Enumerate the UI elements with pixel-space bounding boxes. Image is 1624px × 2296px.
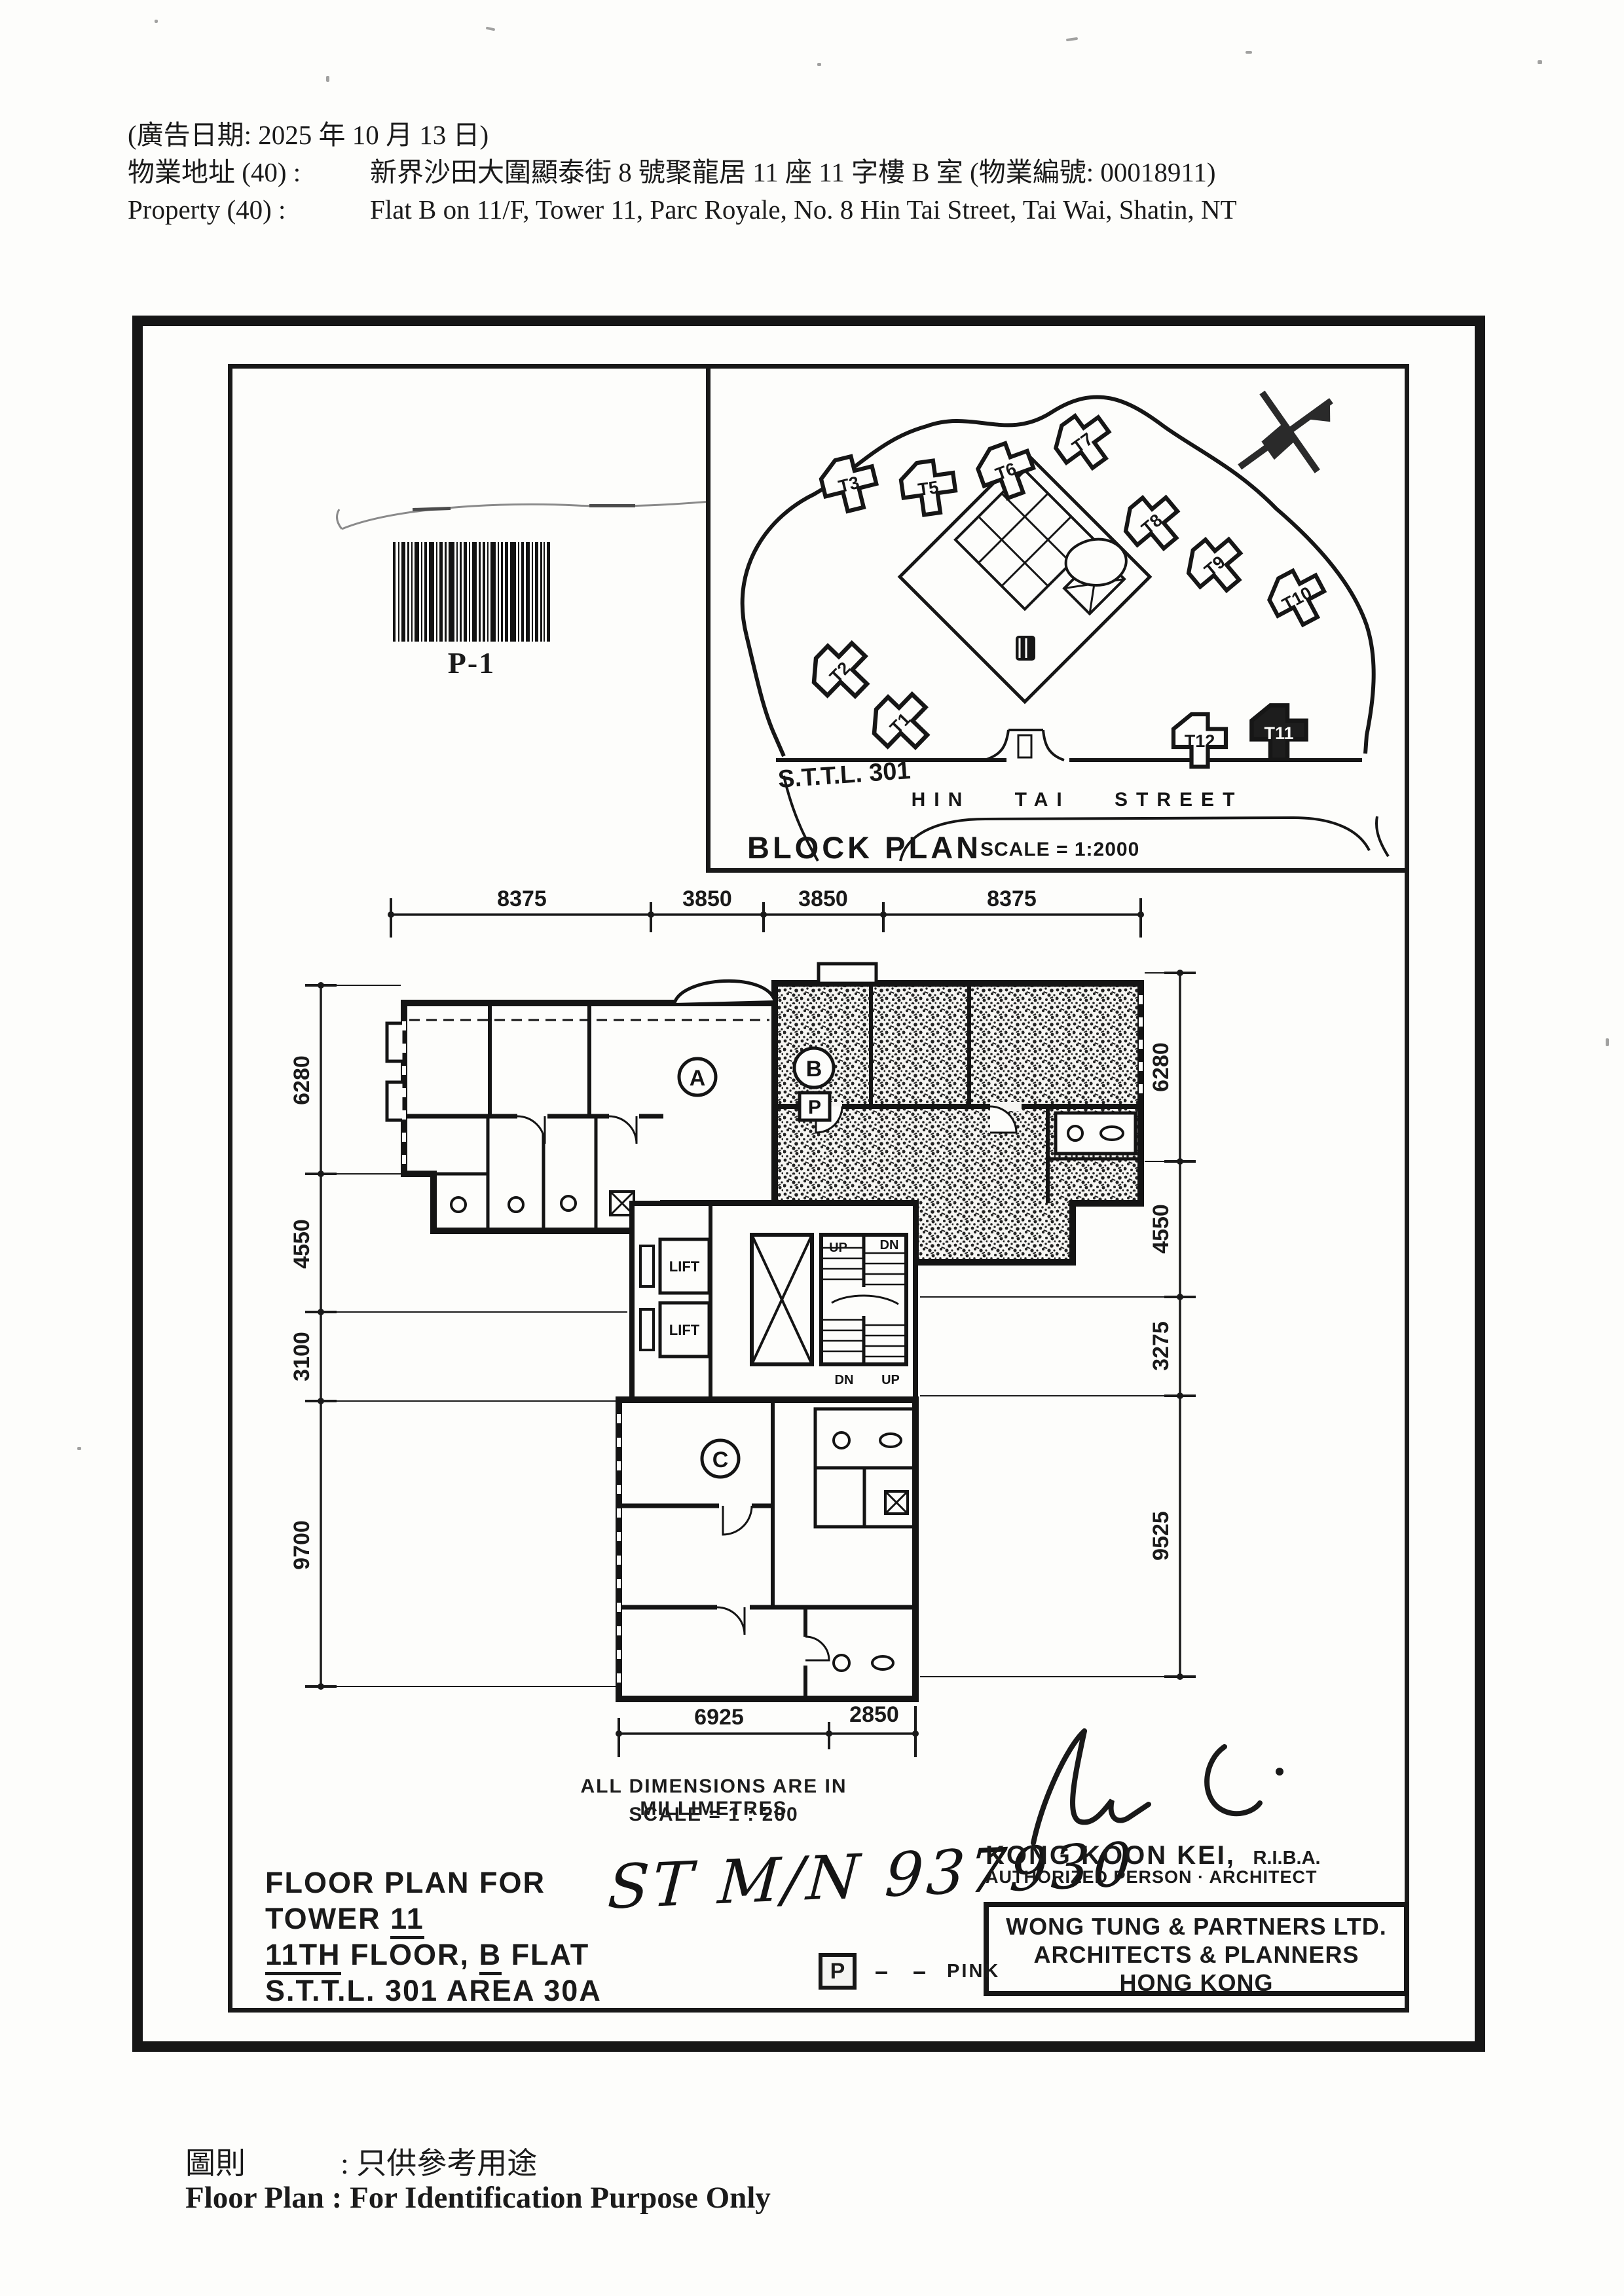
site-boundary-left bbox=[747, 636, 784, 756]
architect-name-line: KONG KOON KEI, R.I.B.A. bbox=[986, 1841, 1321, 1870]
title-line-3: 11TH FLOOR, B FLAT bbox=[265, 1937, 602, 1973]
pool-shape bbox=[1066, 539, 1126, 585]
scale-note: SCALE = 1 : 200 bbox=[517, 1804, 910, 1826]
dim-left-3: 3100 bbox=[289, 1332, 314, 1381]
flat-a-label: A bbox=[690, 1066, 706, 1091]
block-plan-panel: T3 T5 T6 T7 T8 T9 T10 T2 T1 T12 T11 S.T.… bbox=[706, 364, 1409, 873]
scan-artifact bbox=[155, 20, 158, 23]
scan-artifact bbox=[1246, 51, 1252, 54]
dim-top-4: 8375 bbox=[987, 886, 1037, 911]
stair-dn-bottom: DN bbox=[835, 1373, 854, 1387]
scan-artifact bbox=[486, 27, 496, 31]
tower-label-t12: T12 bbox=[1185, 731, 1215, 751]
address-en-label: Property (40) : bbox=[128, 191, 370, 228]
dim-bottom-2: 2850 bbox=[849, 1702, 899, 1727]
scan-artifact bbox=[1066, 37, 1078, 41]
architect-firm-box: WONG TUNG & PARTNERS LTD. ARCHITECTS & P… bbox=[984, 1902, 1409, 1996]
dim-top-3: 3850 bbox=[798, 886, 848, 911]
scan-artifact bbox=[1606, 1038, 1609, 1046]
core-region bbox=[632, 1203, 915, 1429]
ad-date-line: (廣告日期: 2025 年 10 月 13 日) bbox=[128, 117, 1237, 154]
pink-legend-label: PINK bbox=[947, 1961, 1000, 1982]
scan-artifact bbox=[326, 76, 329, 82]
flat-b-label: B bbox=[806, 1057, 822, 1082]
firm-type: ARCHITECTS & PLANNERS bbox=[989, 1941, 1404, 1969]
stair-up-bottom: UP bbox=[881, 1373, 900, 1387]
north-arrow-icon bbox=[1240, 387, 1334, 481]
dim-top-1: 8375 bbox=[497, 886, 547, 911]
dim-left-1: 6280 bbox=[289, 1055, 314, 1105]
dim-right-4: 9525 bbox=[1149, 1511, 1173, 1561]
tower-label-t11: T11 bbox=[1264, 723, 1293, 743]
flat-a-region bbox=[387, 981, 775, 1231]
dim-left-4: 9700 bbox=[289, 1520, 314, 1570]
architect-qualification: R.I.B.A. bbox=[1253, 1848, 1320, 1868]
title-line-4: S.T.T.L. 301 AREA 30A bbox=[265, 1973, 602, 2009]
address-zh-label: 物業地址 (40) : bbox=[128, 154, 370, 191]
block-plan-title: BLOCK PLAN bbox=[747, 830, 982, 865]
firm-city: HONG KONG bbox=[989, 1969, 1404, 1997]
stair-dn-top: DN bbox=[880, 1238, 899, 1252]
architect-name: KONG KOON KEI, bbox=[986, 1841, 1236, 1870]
scan-artifact bbox=[77, 1447, 81, 1450]
footer-zh-label: 圖則 bbox=[185, 2147, 246, 2180]
flat-c-region bbox=[619, 1400, 915, 1699]
architect-signature bbox=[1008, 1722, 1323, 1859]
address-zh-value: 新界沙田大圍顯泰街 8 號聚龍居 11 座 11 字樓 B 室 (物業編號: 0… bbox=[370, 154, 1215, 191]
dim-right-1: 6280 bbox=[1149, 1042, 1173, 1092]
document-header: (廣告日期: 2025 年 10 月 13 日) 物業地址 (40) : 新界沙… bbox=[128, 117, 1237, 228]
title-block: FLOOR PLAN FOR TOWER 11 11TH FLOOR, B FL… bbox=[265, 1865, 602, 2009]
dim-right-2: 4550 bbox=[1149, 1204, 1173, 1254]
dim-left-2: 4550 bbox=[289, 1219, 314, 1269]
pink-legend-box: P bbox=[819, 1953, 857, 1990]
title-line-2: TOWER 11 bbox=[265, 1901, 602, 1937]
lift-label-1: LIFT bbox=[669, 1258, 700, 1275]
footer-zh-value: : 只供參考用途 bbox=[341, 2140, 537, 2183]
dim-bottom-1: 6925 bbox=[694, 1705, 744, 1730]
barcode-label: P-1 bbox=[393, 646, 550, 680]
pink-legend-dashes: – – bbox=[875, 1958, 935, 1985]
footer-en: Floor Plan : For Identification Purpose … bbox=[185, 2180, 771, 2215]
scanned-floor-plan-page: (廣告日期: 2025 年 10 月 13 日) 物業地址 (40) : 新界沙… bbox=[0, 0, 1624, 2296]
title-line-1: FLOOR PLAN FOR bbox=[265, 1865, 602, 1901]
pink-legend: P – – PINK bbox=[819, 1953, 1000, 1990]
footer-zh: 圖則 : 只供參考用途 bbox=[185, 2140, 246, 2183]
street-label: HIN TAI STREET bbox=[912, 789, 1244, 811]
dim-right-3: 3275 bbox=[1149, 1321, 1173, 1371]
address-en-value: Flat B on 11/F, Tower 11, Parc Royale, N… bbox=[370, 191, 1237, 228]
lot-label: S.T.T.L. 301 bbox=[777, 757, 912, 793]
firm-name: WONG TUNG & PARTNERS LTD. bbox=[989, 1912, 1404, 1941]
stair-up-top: UP bbox=[829, 1241, 847, 1255]
entrance-mark bbox=[1018, 735, 1031, 757]
architect-role: AUTHORIZED PERSON · ARCHITECT bbox=[986, 1867, 1318, 1887]
barcode bbox=[393, 542, 550, 642]
flat-c-label: C bbox=[712, 1448, 729, 1472]
block-plan-drawing: T3 T5 T6 T7 T8 T9 T10 T2 T1 T12 T11 S.T.… bbox=[710, 369, 1405, 868]
dim-top-2: 3850 bbox=[682, 886, 732, 911]
pink-box-label: P bbox=[808, 1097, 821, 1118]
floor-plan-drawing: A B P C LIFT LIFT UP DN DN UP bbox=[262, 884, 1244, 1768]
scan-artifact bbox=[817, 63, 821, 66]
block-plan-scale: SCALE = 1:2000 bbox=[980, 839, 1139, 860]
lift-label-2: LIFT bbox=[669, 1322, 700, 1338]
road-curve bbox=[1376, 816, 1388, 856]
scan-artifact bbox=[1538, 60, 1542, 64]
tower-label-t5: T5 bbox=[917, 477, 940, 500]
